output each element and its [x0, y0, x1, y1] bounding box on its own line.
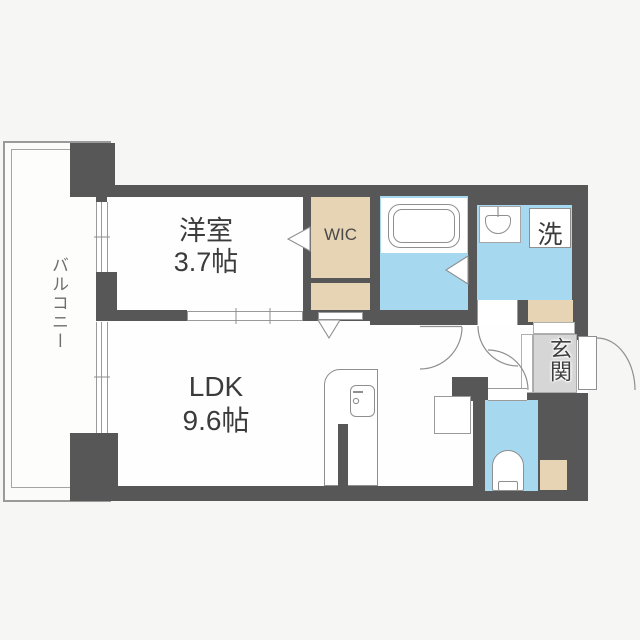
wall-top-right-extra: [468, 197, 588, 205]
wall-corner-top-left: [70, 143, 115, 197]
floorplan: 洋室 3.7帖 LDK 9.6帖 WIC 洗 玄関 バルコニー: [0, 0, 640, 640]
entrance-step-left: [521, 334, 533, 393]
sliding-door-yoshitsu-ldk: [187, 311, 303, 321]
window-ldk: [96, 322, 108, 433]
wall-kitchen-stub2: [338, 424, 348, 486]
western-room-name: 洋室: [120, 216, 292, 247]
label-entrance: 玄関: [543, 337, 575, 383]
entrance-door-leaf: [578, 336, 597, 390]
ldk-name: LDK: [130, 370, 302, 404]
shoe-cabinet: [528, 300, 573, 322]
label-balcony: バルコニー: [46, 256, 71, 351]
ldk-area: 9.6帖: [130, 404, 302, 438]
label-wic: WIC: [311, 225, 370, 245]
wall-top: [96, 185, 588, 197]
storage-door-sill: [318, 312, 363, 320]
refrigerator-space: [434, 396, 471, 434]
wall-yoshitsu-wic: [303, 197, 311, 321]
label-ldk: LDK 9.6帖: [130, 370, 302, 438]
washroom-door-sill: [477, 300, 518, 325]
toilet-door-sill: [488, 388, 527, 401]
wall-yoshitsu-ldk: [96, 310, 187, 321]
wall-right-upper: [572, 185, 588, 340]
storage-floor: [311, 283, 370, 310]
toilet-icon-base: [498, 481, 518, 491]
wall-hall-top: [380, 310, 473, 325]
wall-wic-bath: [370, 196, 380, 325]
entrance-step-top: [533, 322, 575, 334]
bathtub-icon-inner: [393, 209, 455, 243]
label-washer: 洗: [529, 215, 571, 251]
toilet-cabinet: [540, 460, 567, 490]
kitchen-appliance-icon: [350, 385, 375, 417]
window-yoshitsu: [96, 202, 108, 272]
western-room-area: 3.7帖: [120, 247, 292, 278]
label-western-room: 洋室 3.7帖: [120, 216, 292, 278]
wall-bath-washroom: [468, 196, 477, 310]
